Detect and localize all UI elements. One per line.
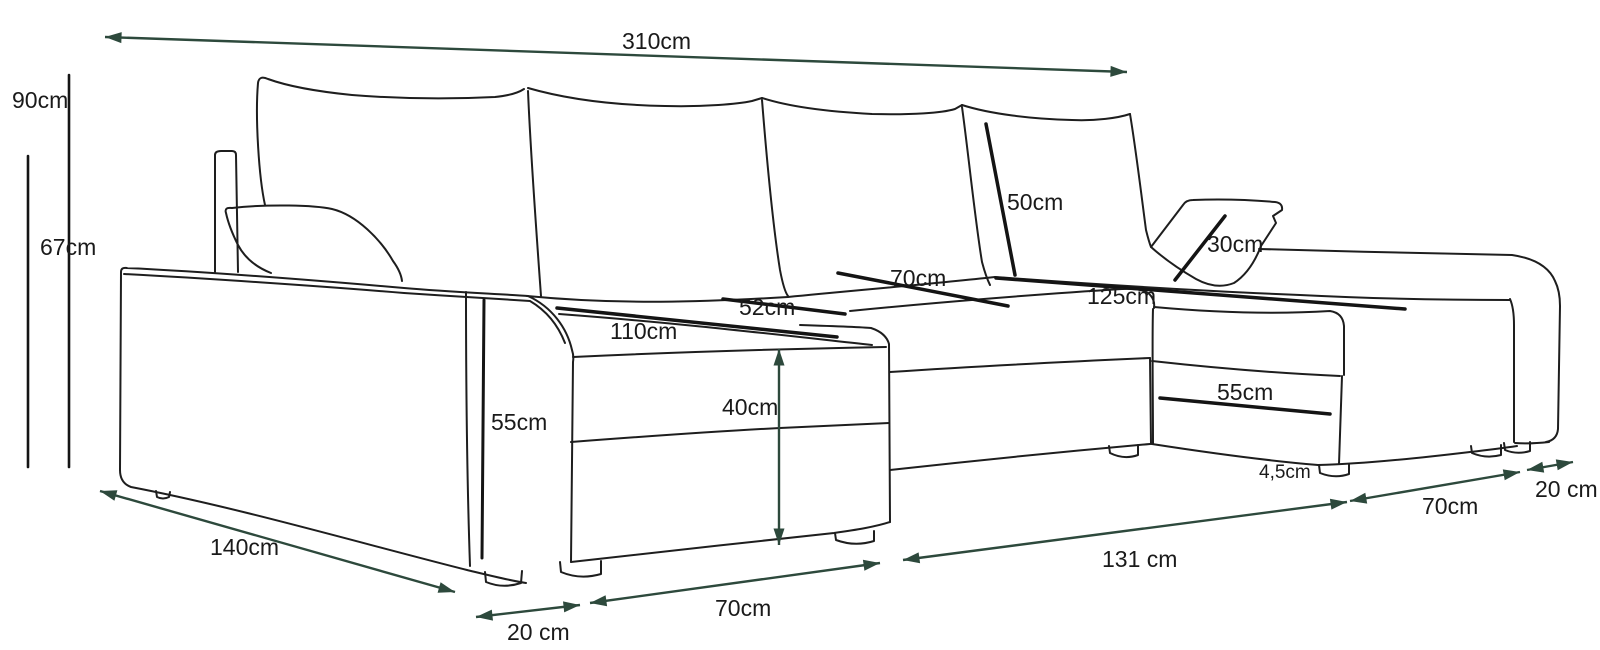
svg-text:67cm: 67cm: [40, 234, 96, 260]
svg-text:70cm: 70cm: [890, 265, 946, 291]
svg-text:110cm: 110cm: [610, 318, 677, 344]
svg-text:55cm: 55cm: [1217, 379, 1273, 405]
svg-text:125cm: 125cm: [1087, 283, 1156, 309]
svg-text:20 cm: 20 cm: [1535, 476, 1598, 502]
svg-text:90cm: 90cm: [12, 87, 68, 113]
svg-text:55cm: 55cm: [491, 409, 547, 435]
svg-text:30cm: 30cm: [1207, 231, 1263, 257]
svg-text:140cm: 140cm: [210, 534, 279, 560]
svg-text:40cm: 40cm: [722, 394, 778, 420]
svg-text:131 cm: 131 cm: [1102, 546, 1177, 572]
svg-text:70cm: 70cm: [715, 595, 771, 621]
svg-text:70cm: 70cm: [1422, 493, 1478, 519]
svg-text:52cm: 52cm: [739, 294, 795, 320]
svg-text:4,5cm: 4,5cm: [1259, 462, 1311, 483]
svg-text:20 cm: 20 cm: [507, 619, 570, 645]
svg-text:50cm: 50cm: [1007, 189, 1063, 215]
svg-text:310cm: 310cm: [622, 28, 691, 54]
